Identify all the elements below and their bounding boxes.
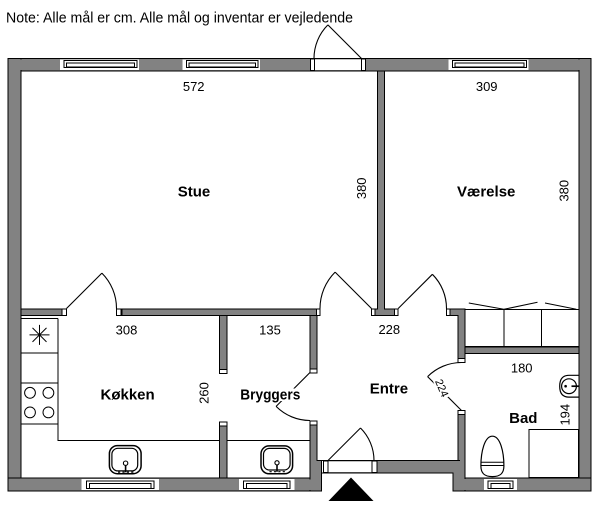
svg-text:309: 309 xyxy=(476,79,498,94)
svg-text:180: 180 xyxy=(511,360,533,375)
svg-text:380: 380 xyxy=(557,180,572,202)
svg-text:228: 228 xyxy=(378,322,400,337)
svg-text:194: 194 xyxy=(557,404,572,426)
svg-text:260: 260 xyxy=(197,382,212,404)
svg-text:Værelse: Værelse xyxy=(457,184,515,201)
svg-text:Bryggers: Bryggers xyxy=(240,386,300,403)
svg-text:308: 308 xyxy=(116,322,138,337)
svg-text:Bad: Bad xyxy=(509,410,537,427)
svg-text:Entre: Entre xyxy=(370,381,408,398)
svg-text:Køkken: Køkken xyxy=(101,386,155,403)
svg-text:135: 135 xyxy=(259,323,281,338)
svg-text:572: 572 xyxy=(183,79,205,94)
svg-text:Note: Alle mål er cm. Alle mål: Note: Alle mål er cm. Alle mål og invent… xyxy=(6,9,353,26)
svg-text:380: 380 xyxy=(354,177,369,199)
svg-text:Stue: Stue xyxy=(178,184,211,201)
